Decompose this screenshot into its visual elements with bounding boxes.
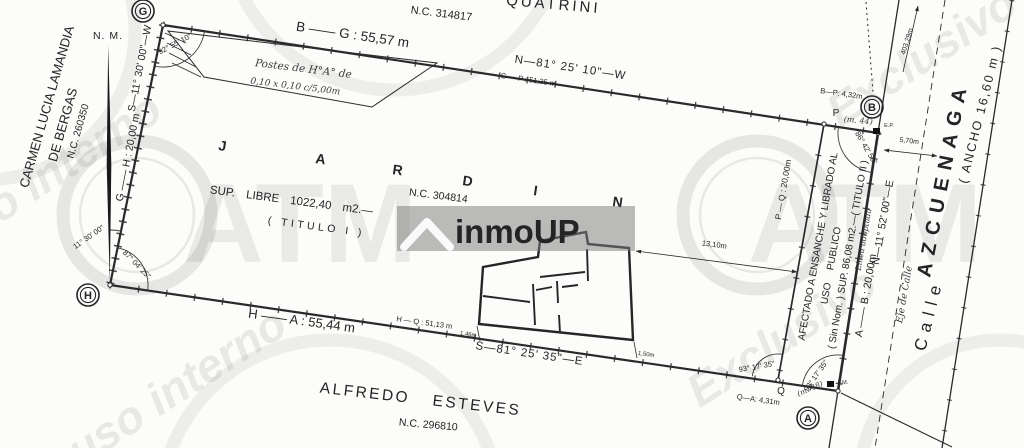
neighbor-bottom-nc: N.C. 296810 bbox=[398, 416, 458, 433]
marker-label-fm: F.M. bbox=[838, 380, 849, 386]
dim-top-label: B —— G : 55,57 m bbox=[295, 19, 410, 51]
corner-label-A: A bbox=[804, 413, 812, 425]
corner-label-H: H bbox=[84, 290, 92, 302]
angle-arc-north bbox=[110, 230, 122, 231]
dim-1-50-label: 1,50m bbox=[637, 351, 654, 359]
bearing-bottom-label: S—81° 25' 35"—E bbox=[475, 340, 585, 368]
angle-label-G: 92° 55' 10" bbox=[157, 31, 194, 56]
dim-5-70-label: 5,70m bbox=[899, 137, 919, 146]
north-marker-label: N. M. bbox=[93, 30, 123, 42]
survey-plan-svg: ATM ATM uso interno uso interno Exclusiv… bbox=[0, 0, 1024, 448]
inmoup-logo-text: inmoUP bbox=[455, 213, 580, 250]
neighbor-top-name: QUATRINI bbox=[506, 0, 602, 17]
jardin-letter-d: D bbox=[462, 172, 474, 189]
neighbor-top-nc: N.C. 314817 bbox=[410, 4, 473, 23]
corner-label-B: B bbox=[868, 102, 876, 114]
dim-line-5-70 bbox=[884, 150, 937, 156]
north-needle-icon bbox=[107, 45, 112, 283]
building-interior-walls bbox=[483, 249, 588, 333]
jardin-letter-i: I bbox=[533, 182, 539, 198]
angle-label-H: 87° 04' 25" bbox=[121, 248, 153, 281]
street-west-ext-bottom bbox=[829, 391, 838, 448]
street-calle-label: Calle bbox=[911, 277, 947, 353]
parcel-nc-label: N.C. 304814 bbox=[408, 186, 468, 205]
dim-tick-1-50 bbox=[634, 342, 637, 358]
neighbor-bottom-name: ALFREDO ESTEVES bbox=[319, 380, 522, 420]
jardin-letter-j: J bbox=[218, 137, 228, 154]
monument-ep-icon bbox=[873, 128, 880, 134]
offset-bottom-label: Q—A: 4,31m bbox=[736, 392, 780, 407]
corner-label-G: G bbox=[139, 6, 148, 18]
inmoup-watermark: inmoUP bbox=[397, 206, 635, 251]
dim-1-46-label: 1,46m bbox=[459, 331, 476, 339]
point-label-Q: Q bbox=[777, 386, 785, 397]
dim-top-partial-label: G — P : 51,25 m bbox=[500, 71, 556, 88]
atm-ring-left-inner-icon bbox=[80, 158, 194, 272]
marker-label-ep: E.P. bbox=[884, 123, 894, 129]
boundary-extension-line bbox=[841, 393, 952, 447]
watermark-arc-bottomright-icon bbox=[860, 340, 1024, 448]
survey-plan-page: ATM ATM uso interno uso interno Exclusiv… bbox=[0, 0, 1024, 448]
monument-fm-icon bbox=[827, 381, 834, 387]
dim-13-10-label: 13,10m bbox=[701, 238, 727, 250]
point-label-P: P bbox=[833, 108, 840, 119]
